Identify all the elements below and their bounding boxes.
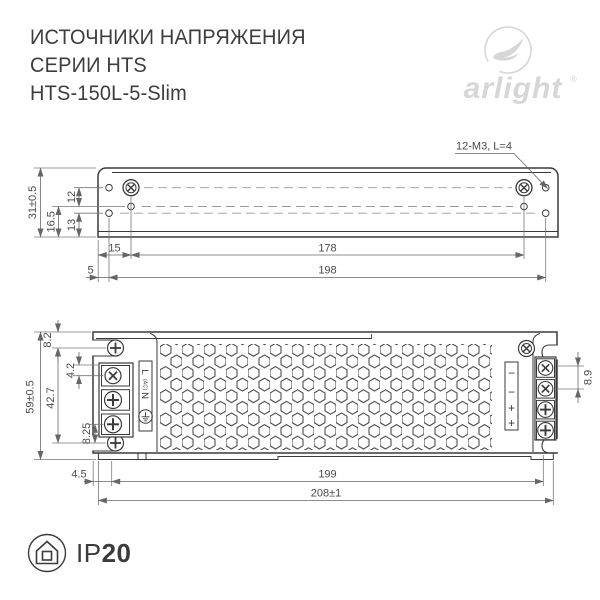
dc-terminal-block — [535, 357, 556, 440]
top-view-body — [98, 168, 558, 237]
dim-label-4-2: 4.2 — [65, 363, 77, 378]
ac-label-strip: L (AC) N — [139, 361, 153, 431]
base-plate — [98, 453, 553, 460]
face-screw-icon — [519, 341, 535, 357]
house-icon — [37, 542, 58, 564]
ip20-enclosure-icon — [29, 535, 66, 572]
front-view: L (AC) N − − + + — [25, 320, 595, 505]
dim-label-13: 13 — [66, 219, 78, 231]
dc-label-strip: − − + + — [505, 362, 518, 430]
dim-label-16-5: 16.5 — [46, 211, 58, 232]
dim-label-198: 198 — [318, 265, 336, 277]
dim-label-15: 15 — [108, 243, 120, 255]
ac-label-l: L — [139, 369, 150, 374]
dim-label-199: 199 — [318, 469, 336, 481]
dim-label-42-7: 42.7 — [45, 387, 57, 408]
vent-honeycomb — [160, 344, 492, 450]
technical-drawing: 31±0.5 16.5 12 13 15 178 5 198 12-M3, L=… — [0, 0, 600, 600]
dim-label-8-25: 8.25 — [81, 423, 93, 444]
dim-label-4-5: 4.5 — [71, 469, 86, 481]
dim-label-59: 59±0.5 — [25, 380, 37, 414]
dc-label-minus2: − — [508, 385, 515, 399]
dim-label-8-2: 8.2 — [42, 332, 54, 347]
ip-rating-label: IP20 — [76, 538, 132, 569]
top-view: 31±0.5 16.5 12 13 15 178 5 198 12-M3, L=… — [27, 141, 558, 283]
ac-terminal-block — [99, 363, 133, 437]
ip-value: 20 — [102, 538, 132, 568]
dim-label-12: 12 — [66, 191, 78, 203]
ip-prefix: IP — [76, 538, 102, 568]
dim-label-208: 208±1 — [311, 488, 342, 500]
dc-label-minus1: − — [508, 366, 515, 380]
ac-label-n: N — [139, 392, 150, 399]
dim-label-31: 31±0.5 — [27, 186, 39, 220]
dc-label-plus2: + — [508, 416, 515, 430]
callout-label: 12-M3, L=4 — [456, 141, 512, 153]
dim-label-5: 5 — [87, 265, 93, 277]
dim-label-8-9: 8.9 — [583, 370, 595, 385]
ac-label-ac: (AC) — [142, 379, 148, 390]
dc-label-plus1: + — [508, 401, 515, 415]
dim-label-178: 178 — [318, 243, 336, 255]
